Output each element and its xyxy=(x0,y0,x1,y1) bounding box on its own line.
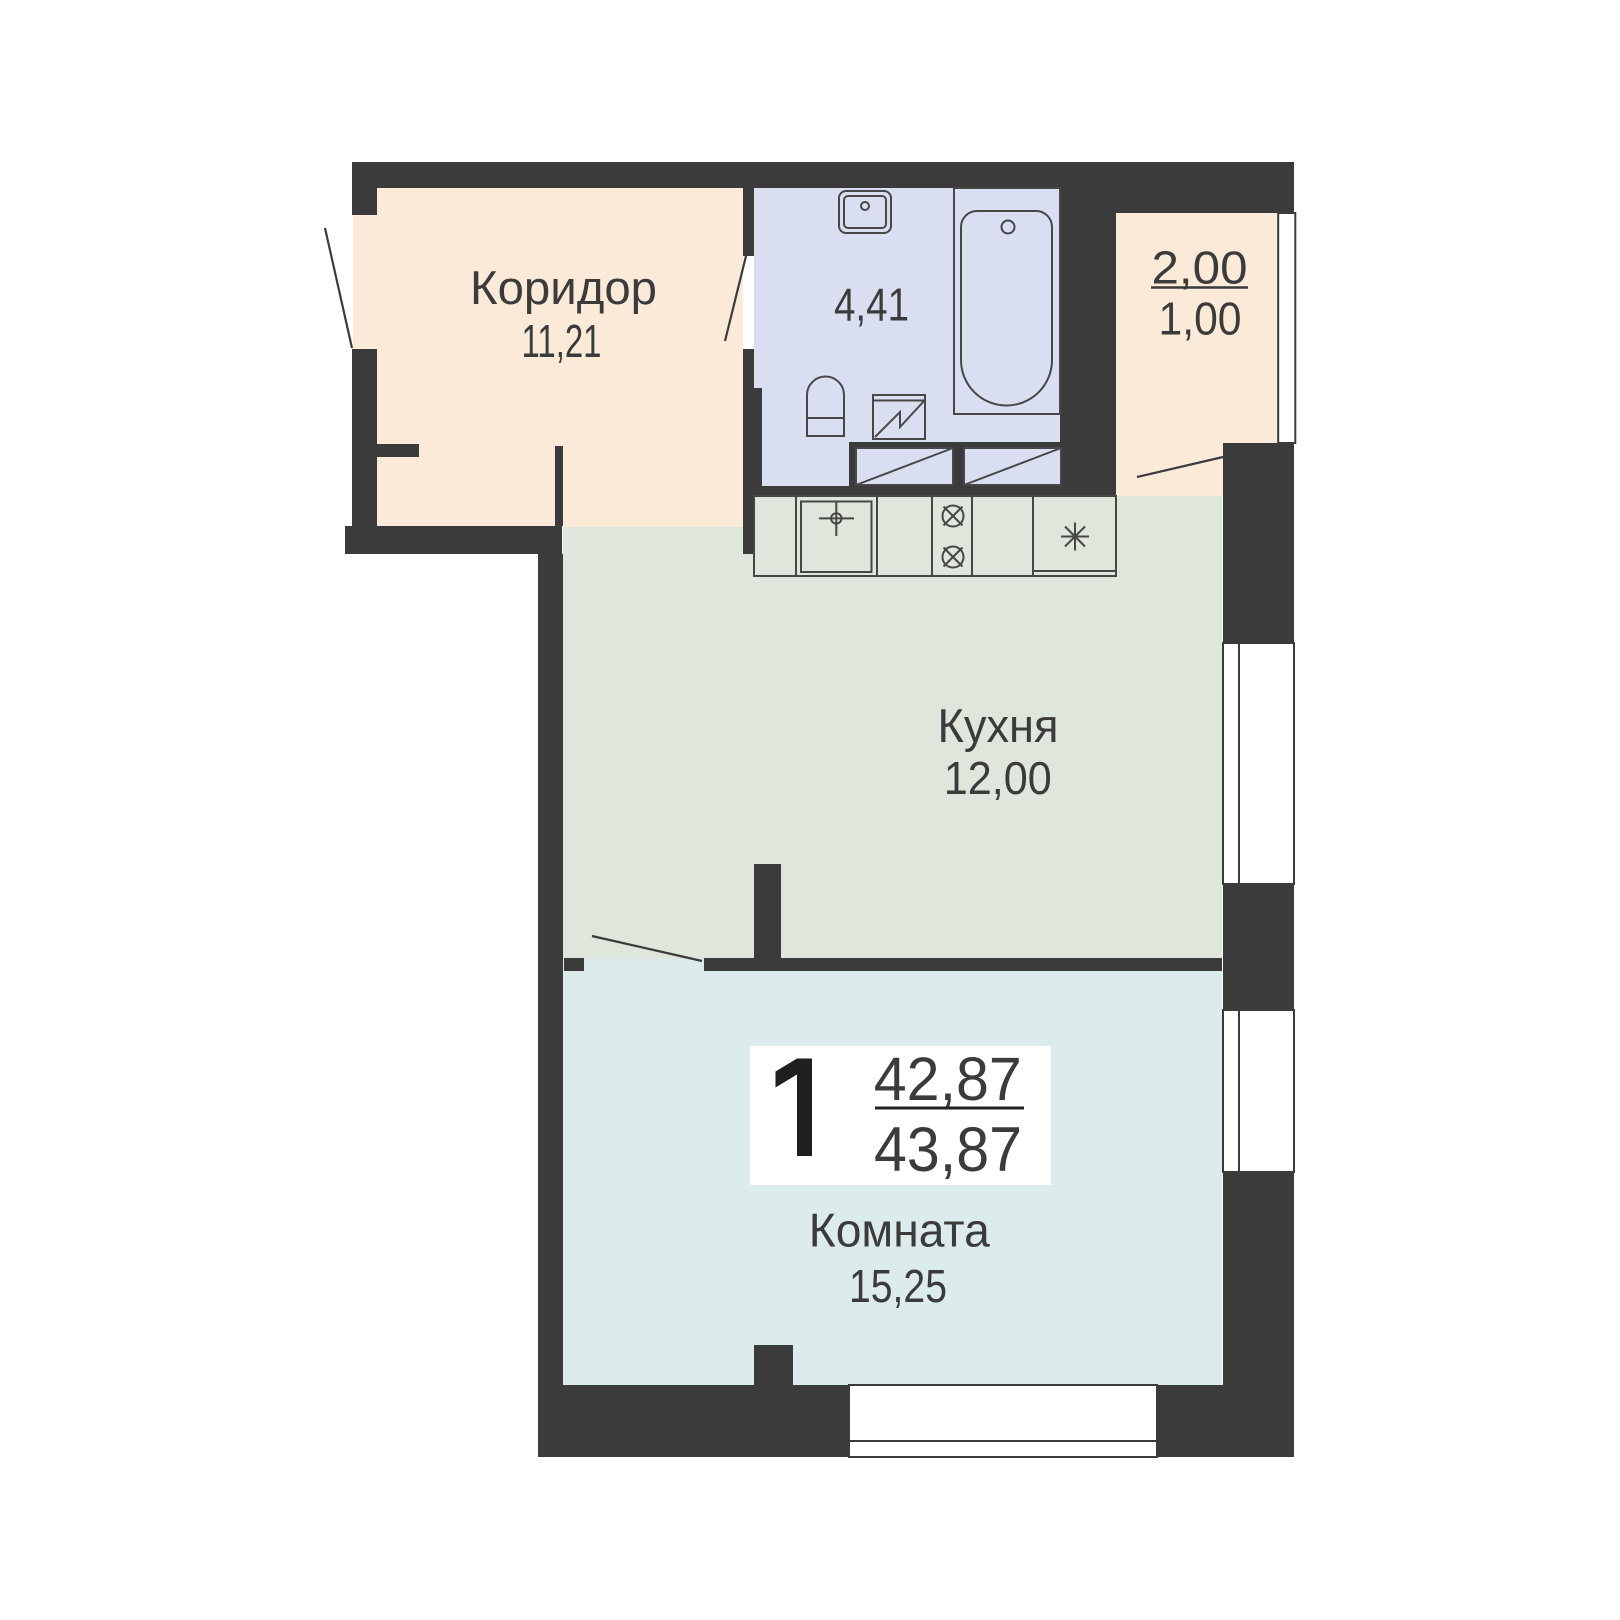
svg-text:43,87: 43,87 xyxy=(874,1115,1022,1185)
svg-text:Комната: Комната xyxy=(809,1204,991,1257)
svg-text:42,87: 42,87 xyxy=(874,1045,1022,1113)
svg-text:Коридор: Коридор xyxy=(470,261,657,314)
svg-text:1,00: 1,00 xyxy=(1159,293,1242,345)
svg-text:2,00: 2,00 xyxy=(1152,242,1248,294)
svg-text:12,00: 12,00 xyxy=(944,752,1052,804)
svg-text:4,41: 4,41 xyxy=(834,279,909,331)
svg-text:11,21: 11,21 xyxy=(522,315,602,367)
svg-text:15,25: 15,25 xyxy=(849,1260,947,1312)
svg-text:Кухня: Кухня xyxy=(938,699,1059,752)
